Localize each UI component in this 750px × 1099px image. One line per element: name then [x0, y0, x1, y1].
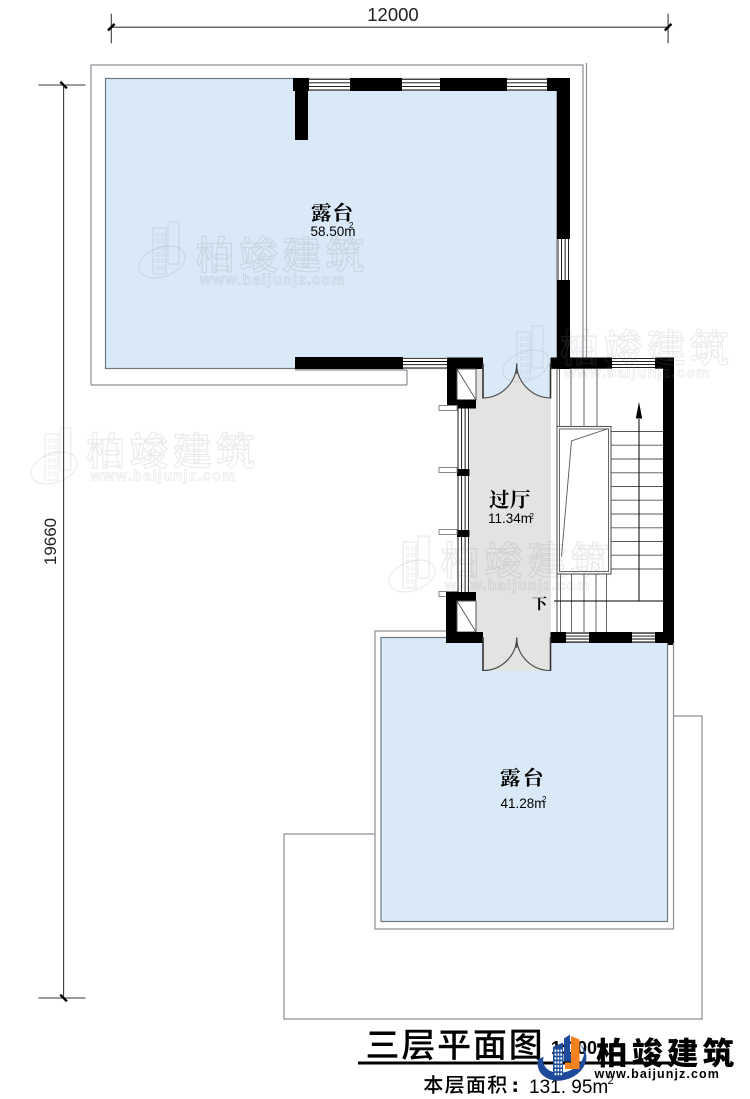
svg-text:www.baijunjz.com: www.baijunjz.com — [564, 366, 711, 382]
svg-text:19660: 19660 — [41, 518, 60, 565]
svg-text:www.baijunjz.com: www.baijunjz.com — [594, 1067, 720, 1081]
svg-text:www.baijunjz.com: www.baijunjz.com — [444, 578, 591, 594]
svg-text:2: 2 — [349, 221, 354, 230]
svg-text:11.34m: 11.34m — [488, 511, 532, 526]
svg-text:12000: 12000 — [367, 4, 418, 25]
svg-text:2: 2 — [530, 512, 535, 521]
svg-text:www.baijunjz.com: www.baijunjz.com — [199, 273, 346, 289]
svg-text:2: 2 — [542, 795, 547, 804]
svg-text:www.baijunjz.com: www.baijunjz.com — [90, 469, 237, 485]
svg-text:41.28m: 41.28m — [501, 796, 546, 811]
